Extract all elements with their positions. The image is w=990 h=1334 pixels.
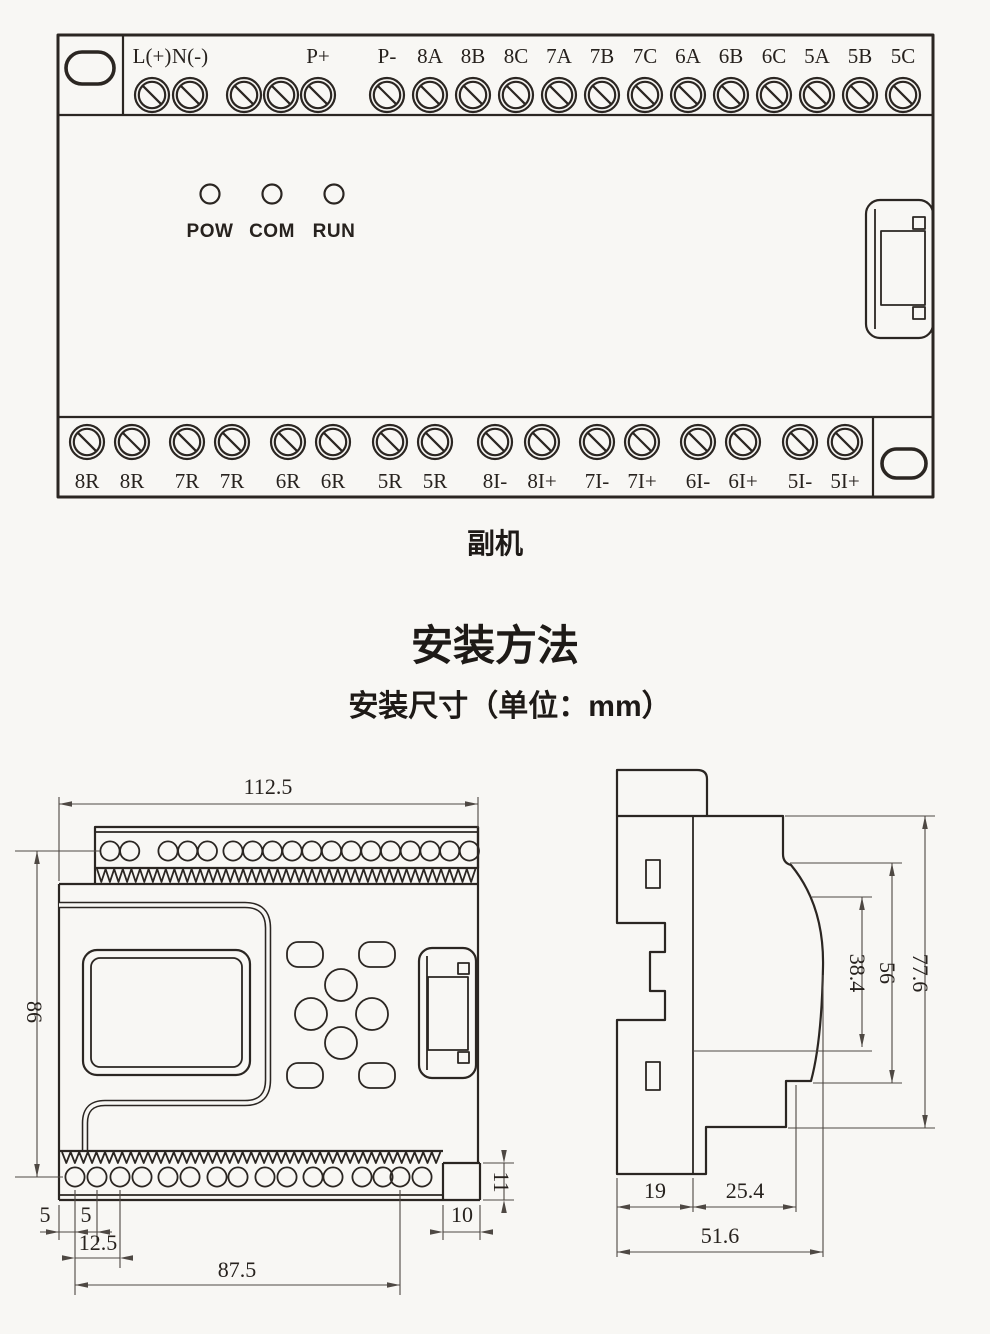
top-terminal-label: 5A <box>804 44 831 68</box>
dimension-value: 25.4 <box>726 1178 765 1203</box>
key-top-left <box>287 942 323 967</box>
key-bottom-left <box>287 1063 323 1088</box>
dimension-arrow <box>430 1229 443 1235</box>
terminal-hole-icon <box>178 841 197 860</box>
terminal-screw-icon <box>671 78 705 112</box>
run-led-label: RUN <box>313 221 356 242</box>
connector-outline <box>866 200 933 338</box>
dimension-arrow <box>889 1070 895 1083</box>
terminal-screw-icon <box>580 425 614 459</box>
bottom-right-mount-slot <box>882 449 926 478</box>
dimension-arrow <box>617 1204 630 1210</box>
dimension-value: 56 <box>875 962 900 984</box>
terminal-screw-icon <box>264 78 298 112</box>
status-leds: POW COM RUN <box>187 185 356 243</box>
top-terminal-label: 8A <box>417 44 444 68</box>
side-view-dimensions: 1925.451.638.45677.6 <box>617 816 935 1257</box>
front-connector-socket <box>428 977 468 1050</box>
terminal-screw-icon <box>70 425 104 459</box>
dimension-value: 12.5 <box>79 1230 118 1255</box>
pow-led-label: POW <box>187 221 234 242</box>
dimension-arrow <box>501 1150 507 1163</box>
dimension-arrow <box>480 1229 493 1235</box>
front-top-serration <box>97 869 475 882</box>
terminal-screw-icon <box>628 78 662 112</box>
bottom-terminal-label: 5I- <box>788 469 813 493</box>
display-window-inner <box>91 958 242 1067</box>
bottom-terminal-label: 7I+ <box>627 469 656 493</box>
top-terminal-label: 5B <box>848 44 873 68</box>
device-front-panel: L(+)N(-)P+P-8A8B8C7A7B7C6A6B6C5A5B5C POW… <box>58 35 933 497</box>
terminal-screw-icon <box>585 78 619 112</box>
display-window-outer <box>83 950 250 1075</box>
bottom-terminal-label: 5R <box>378 469 403 493</box>
dimension-arrow <box>889 863 895 876</box>
key-right <box>356 998 388 1030</box>
bottom-terminal-label: 8R <box>120 469 145 493</box>
terminal-hole-icon <box>263 841 282 860</box>
dimension-value: 10 <box>451 1202 473 1227</box>
top-terminal-label: L(+) <box>133 44 172 68</box>
terminal-hole-icon <box>255 1167 274 1186</box>
bottom-terminal-label: 6R <box>321 469 346 493</box>
terminal-screw-icon <box>135 78 169 112</box>
terminal-hole-icon <box>401 841 420 860</box>
manual-page: L(+)N(-)P+P-8A8B8C7A7B7C6A6B6C5A5B5C POW… <box>0 0 990 1334</box>
terminal-screw-icon <box>525 425 559 459</box>
terminal-hole-icon <box>440 841 459 860</box>
terminal-screw-icon <box>478 425 512 459</box>
dimension-value: 5 <box>81 1202 92 1227</box>
terminal-hole-icon <box>87 1167 106 1186</box>
pow-led-icon <box>201 185 220 204</box>
terminal-hole-icon <box>65 1167 84 1186</box>
terminal-screw-icon <box>170 425 204 459</box>
terminal-hole-icon <box>110 1167 129 1186</box>
bottom-terminal-label: 7I- <box>585 469 610 493</box>
terminal-hole-icon <box>158 841 177 860</box>
com-led-label: COM <box>249 221 295 242</box>
section-title: 安装方法 <box>411 622 579 669</box>
top-terminal-label: 8C <box>504 44 529 68</box>
top-terminal-label: N(-) <box>172 44 208 68</box>
dimension-arrow <box>34 851 40 864</box>
dimension-value: 87.5 <box>218 1257 257 1282</box>
dimension-arrow <box>617 1249 630 1255</box>
terminal-screw-icon <box>301 78 335 112</box>
dimension-arrow <box>680 1204 693 1210</box>
key-up <box>325 969 357 1001</box>
dimension-arrow <box>62 1255 75 1261</box>
terminal-screw-icon <box>800 78 834 112</box>
top-terminal-label: 6B <box>719 44 744 68</box>
terminal-screw-icon <box>886 78 920 112</box>
dimension-arrow <box>859 1034 865 1047</box>
top-left-mount-slot <box>66 52 114 84</box>
dimension-front_depth: 25.4 <box>693 1085 796 1212</box>
bottom-terminal-row: 8R8R7R7R6R6R5R5R8I-8I+7I-7I+6I-6I+5I-5I+ <box>70 425 862 493</box>
key-left <box>295 998 327 1030</box>
terminal-screw-icon <box>757 78 791 112</box>
terminal-hole-icon <box>198 841 217 860</box>
front-connector-tab-top <box>458 963 469 974</box>
connector-tab-bottom <box>913 307 925 319</box>
bottom-terminal-label: 8I+ <box>527 469 556 493</box>
dimension-value: 38.4 <box>845 954 870 993</box>
dimension-overall_depth: 51.6 <box>617 975 823 1257</box>
dimension-value: 86 <box>22 1001 47 1023</box>
dimension-arrow <box>387 1282 400 1288</box>
connector-tab-top <box>913 217 925 229</box>
dimension-arrow <box>810 1249 823 1255</box>
terminal-screw-icon <box>115 425 149 459</box>
front-bottom-serration <box>62 1152 440 1163</box>
dimension-arrow <box>34 1164 40 1177</box>
section-subtitle: 安装尺寸（单位：mm） <box>348 689 671 723</box>
dimension-recess_height: 38.4 <box>693 897 872 1051</box>
terminal-screw-icon <box>271 425 305 459</box>
terminal-screw-icon <box>173 78 207 112</box>
dimension-value: 77.6 <box>908 954 933 993</box>
terminal-hole-icon <box>132 1167 151 1186</box>
dimension-value: 11 <box>489 1171 514 1192</box>
terminal-screw-icon <box>215 425 249 459</box>
bottom-terminal-label: 8I- <box>483 469 508 493</box>
top-terminal-label: 7A <box>546 44 573 68</box>
top-terminal-label: 6A <box>675 44 702 68</box>
terminal-hole-icon <box>180 1167 199 1186</box>
side-view-drawing: 1925.451.638.45677.6 <box>617 770 935 1257</box>
terminal-screw-icon <box>828 425 862 459</box>
bottom-terminal-label: 6I- <box>686 469 711 493</box>
top-terminal-label: 8B <box>461 44 486 68</box>
bottom-terminal-label: 7R <box>175 469 200 493</box>
terminal-hole-icon <box>412 1167 431 1186</box>
dimension-arrow <box>859 897 865 910</box>
terminal-hole-icon <box>302 841 321 860</box>
dimension-arrow <box>46 1229 59 1235</box>
side-slot-bottom <box>646 1062 660 1090</box>
terminal-screw-icon <box>726 425 760 459</box>
front-top-holes <box>100 841 479 860</box>
side-body-outline <box>617 816 823 1174</box>
terminal-screw-icon <box>413 78 447 112</box>
bottom-terminal-label: 7R <box>220 469 245 493</box>
key-top-right <box>359 942 395 967</box>
terminal-hole-icon <box>100 841 119 860</box>
bottom-terminal-label: 6I+ <box>728 469 757 493</box>
terminal-screw-icon <box>456 78 490 112</box>
front-view-connector <box>419 948 476 1078</box>
connector-socket <box>881 231 925 305</box>
dimension-value: 112.5 <box>244 774 293 799</box>
top-terminal-label: 5C <box>891 44 916 68</box>
terminal-screw-icon <box>625 425 659 459</box>
terminal-screw-icon <box>714 78 748 112</box>
expansion-connector <box>866 200 933 338</box>
dimension-arrow <box>783 1204 796 1210</box>
terminal-hole-icon <box>223 841 242 860</box>
dimension-value: 51.6 <box>701 1223 740 1248</box>
terminal-screw-icon <box>843 78 877 112</box>
terminal-screw-icon <box>373 425 407 459</box>
terminal-hole-icon <box>158 1167 177 1186</box>
terminal-hole-icon <box>283 841 302 860</box>
com-led-icon <box>263 185 282 204</box>
front-bottom-holes <box>65 1167 431 1186</box>
front-view-drawing: 112.5865512.587.51011 <box>15 774 514 1295</box>
terminal-hole-icon <box>381 841 400 860</box>
terminal-screw-icon <box>316 425 350 459</box>
keypad-buttons <box>287 942 395 1088</box>
bottom-terminal-label: 6R <box>276 469 301 493</box>
top-terminal-label: 7B <box>590 44 615 68</box>
bottom-terminal-label: 5R <box>423 469 448 493</box>
top-terminal-row: L(+)N(-)P+P-8A8B8C7A7B7C6A6B6C5A5B5C <box>133 44 920 112</box>
dimension-arrow <box>59 801 72 807</box>
dimension-step_height: 11 <box>483 1150 514 1213</box>
side-slot-top <box>646 860 660 888</box>
terminal-hole-icon <box>323 1167 342 1186</box>
dimension-value: 19 <box>644 1178 666 1203</box>
terminal-hole-icon <box>228 1167 247 1186</box>
terminal-screw-icon <box>681 425 715 459</box>
dimension-arrow <box>120 1255 133 1261</box>
bottom-terminal-label: 5I+ <box>830 469 859 493</box>
front-connector-tab-bottom <box>458 1052 469 1063</box>
dimension-arrow <box>922 816 928 829</box>
dimension-arrow <box>75 1282 88 1288</box>
side-din-tab <box>617 770 707 816</box>
dimension-arrow <box>693 1204 706 1210</box>
terminal-hole-icon <box>207 1167 226 1186</box>
terminal-screw-icon <box>227 78 261 112</box>
terminal-hole-icon <box>322 841 341 860</box>
top-terminal-label: 6C <box>762 44 787 68</box>
dimension-value: 5 <box>40 1202 51 1227</box>
terminal-hole-icon <box>420 841 439 860</box>
terminal-screw-icon <box>418 425 452 459</box>
top-terminal-label: P+ <box>306 44 330 68</box>
technical-diagram: L(+)N(-)P+P-8A8B8C7A7B7C6A6B6C5A5B5C POW… <box>0 0 990 1334</box>
run-led-icon <box>325 185 344 204</box>
dimension-base_depth: 19 <box>617 1178 693 1257</box>
terminal-hole-icon <box>277 1167 296 1186</box>
terminal-hole-icon <box>303 1167 322 1186</box>
dimension-arrow <box>465 801 478 807</box>
dimension-arrow <box>922 1115 928 1128</box>
terminal-hole-icon <box>120 841 139 860</box>
dimension-arrow <box>501 1200 507 1213</box>
terminal-hole-icon <box>342 841 361 860</box>
terminal-hole-icon <box>361 841 380 860</box>
terminal-screw-icon <box>542 78 576 112</box>
terminal-hole-icon <box>352 1167 371 1186</box>
top-terminal-label: P- <box>378 44 397 68</box>
device-caption: 副机 <box>467 528 523 560</box>
bottom-terminal-label: 8R <box>75 469 100 493</box>
terminal-screw-icon <box>783 425 817 459</box>
top-terminal-label: 7C <box>633 44 658 68</box>
key-bottom-right <box>359 1063 395 1088</box>
terminal-hole-icon <box>460 841 479 860</box>
terminal-screw-icon <box>499 78 533 112</box>
dimension-hole_row_span: 87.5 <box>75 1190 400 1295</box>
terminal-screw-icon <box>370 78 404 112</box>
dimension-step_width: 10 <box>430 1202 493 1240</box>
terminal-hole-icon <box>243 841 262 860</box>
key-down <box>325 1027 357 1059</box>
